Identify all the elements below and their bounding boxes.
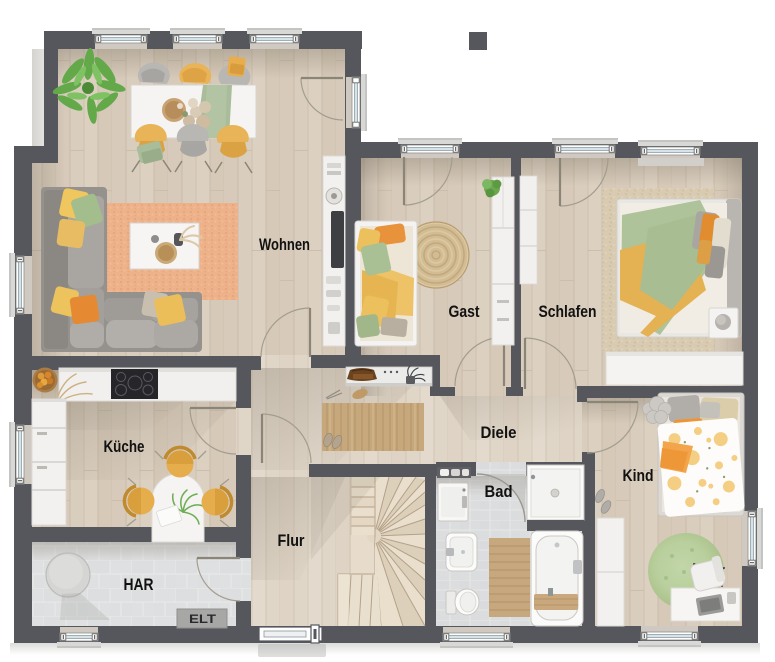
svg-text:HAR: HAR xyxy=(124,576,154,594)
svg-text:Wohnen: Wohnen xyxy=(259,236,310,254)
svg-text:Kind: Kind xyxy=(623,467,654,485)
svg-text:ELT: ELT xyxy=(189,612,217,626)
svg-text:Bad: Bad xyxy=(485,483,513,501)
svg-text:Diele: Diele xyxy=(481,424,517,442)
svg-text:Gast: Gast xyxy=(449,303,480,321)
svg-text:Schlafen: Schlafen xyxy=(539,303,597,321)
svg-text:Flur: Flur xyxy=(278,532,305,550)
svg-text:Küche: Küche xyxy=(104,438,145,456)
